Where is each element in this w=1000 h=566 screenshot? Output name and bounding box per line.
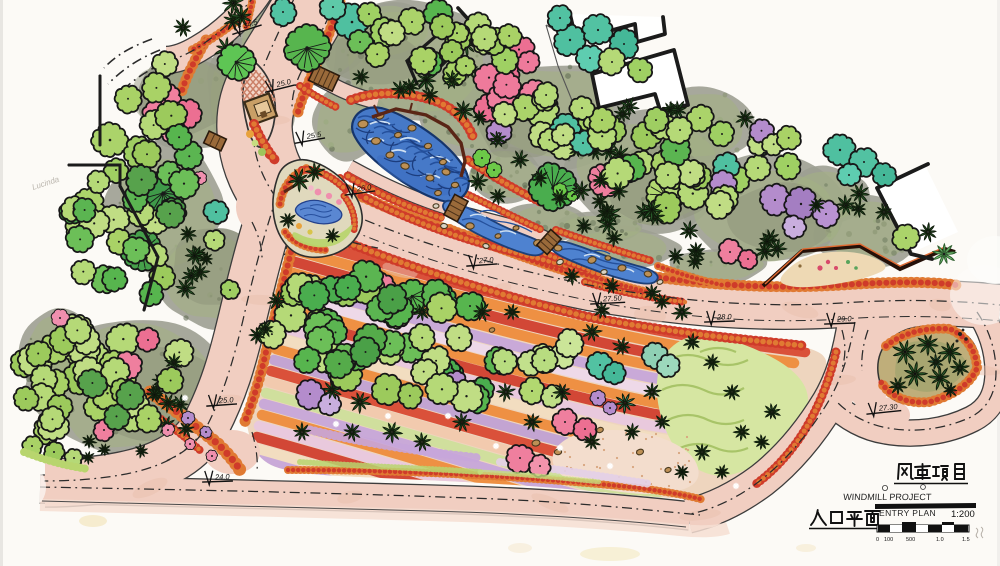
svg-text:100: 100 xyxy=(884,537,893,543)
svg-text:28.0: 28.0 xyxy=(716,312,733,322)
svg-text:WINDMILL PROJECT: WINDMILL PROJECT xyxy=(843,492,932,502)
svg-text:0: 0 xyxy=(876,537,879,543)
svg-text:1.5: 1.5 xyxy=(962,537,970,543)
svg-text:ENTRY PLAN: ENTRY PLAN xyxy=(879,508,936,518)
svg-text:29.0: 29.0 xyxy=(836,314,853,324)
svg-text:1:200: 1:200 xyxy=(951,509,975,520)
svg-text:500: 500 xyxy=(906,537,915,543)
svg-text:1.0: 1.0 xyxy=(936,537,944,543)
svg-text:24.0: 24.0 xyxy=(214,472,231,482)
